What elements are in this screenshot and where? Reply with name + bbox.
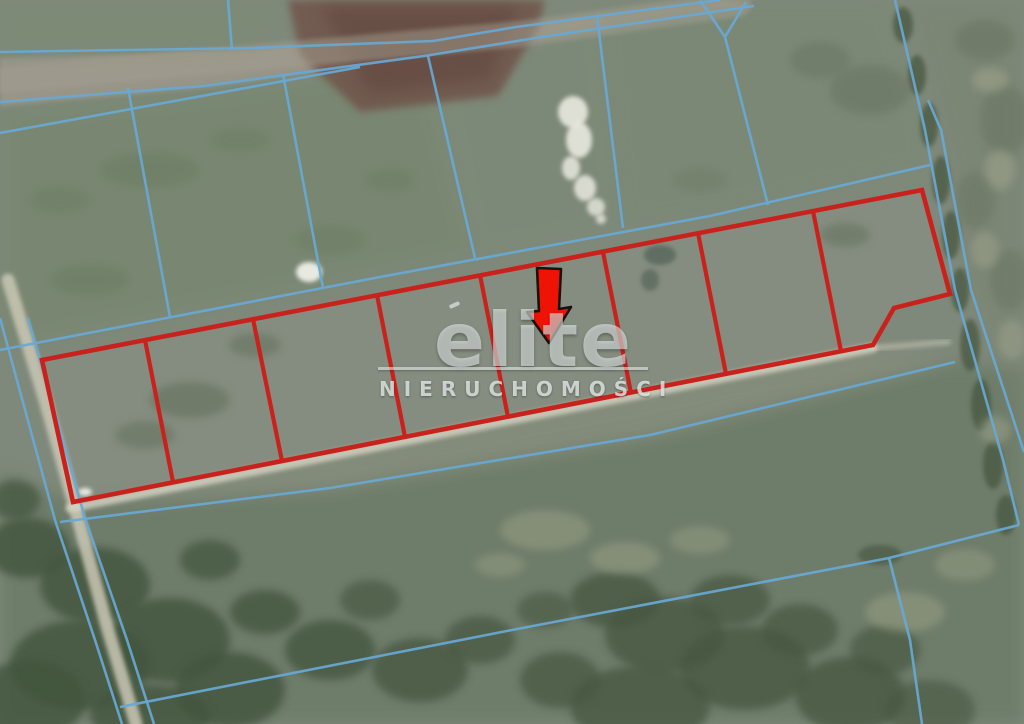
vegetation-blob xyxy=(562,156,580,180)
vegetation-blob xyxy=(566,122,592,158)
terrain-layer xyxy=(0,0,1024,724)
vegetation-blob xyxy=(762,604,838,656)
map-canvas xyxy=(0,0,1024,724)
vegetation-blob xyxy=(78,488,92,496)
vegetation-blob xyxy=(365,168,415,192)
vegetation-blob xyxy=(972,68,1008,92)
vegetation-blob xyxy=(210,128,270,152)
vegetation-blob xyxy=(865,592,945,632)
vegetation-blob xyxy=(30,186,90,214)
vegetation-blob xyxy=(230,590,300,634)
vegetation-blob xyxy=(587,198,605,216)
vegetation-blob xyxy=(955,20,1015,60)
vegetation-blob xyxy=(500,510,590,550)
vegetation-blob xyxy=(820,223,870,247)
vegetation-blob xyxy=(520,652,600,708)
vegetation-blob xyxy=(672,167,728,193)
vegetation-blob xyxy=(790,42,850,78)
vegetation-blob xyxy=(830,65,910,115)
vegetation-blob xyxy=(50,264,130,296)
vegetation-blob xyxy=(985,150,1015,190)
vegetation-blob xyxy=(935,549,995,581)
vegetation-blob xyxy=(150,382,230,418)
vegetation-blob xyxy=(908,55,926,95)
vegetation-blob xyxy=(641,269,659,291)
vegetation-blob xyxy=(475,553,525,577)
vegetation-blob xyxy=(180,540,240,580)
vegetation-blob xyxy=(574,175,596,201)
vegetation-blob xyxy=(590,542,660,574)
vegetation-blob xyxy=(295,225,365,255)
vegetation-blob xyxy=(596,214,606,224)
vegetation-blob xyxy=(644,245,676,265)
vegetation-blob xyxy=(670,526,730,554)
vegetation-blob xyxy=(100,152,200,188)
vegetation-blob xyxy=(850,625,920,675)
vegetation-blob xyxy=(971,232,999,268)
vegetation-blob xyxy=(340,580,400,620)
aerial-map: elite NIERUCHOMOŚCI xyxy=(0,0,1024,724)
